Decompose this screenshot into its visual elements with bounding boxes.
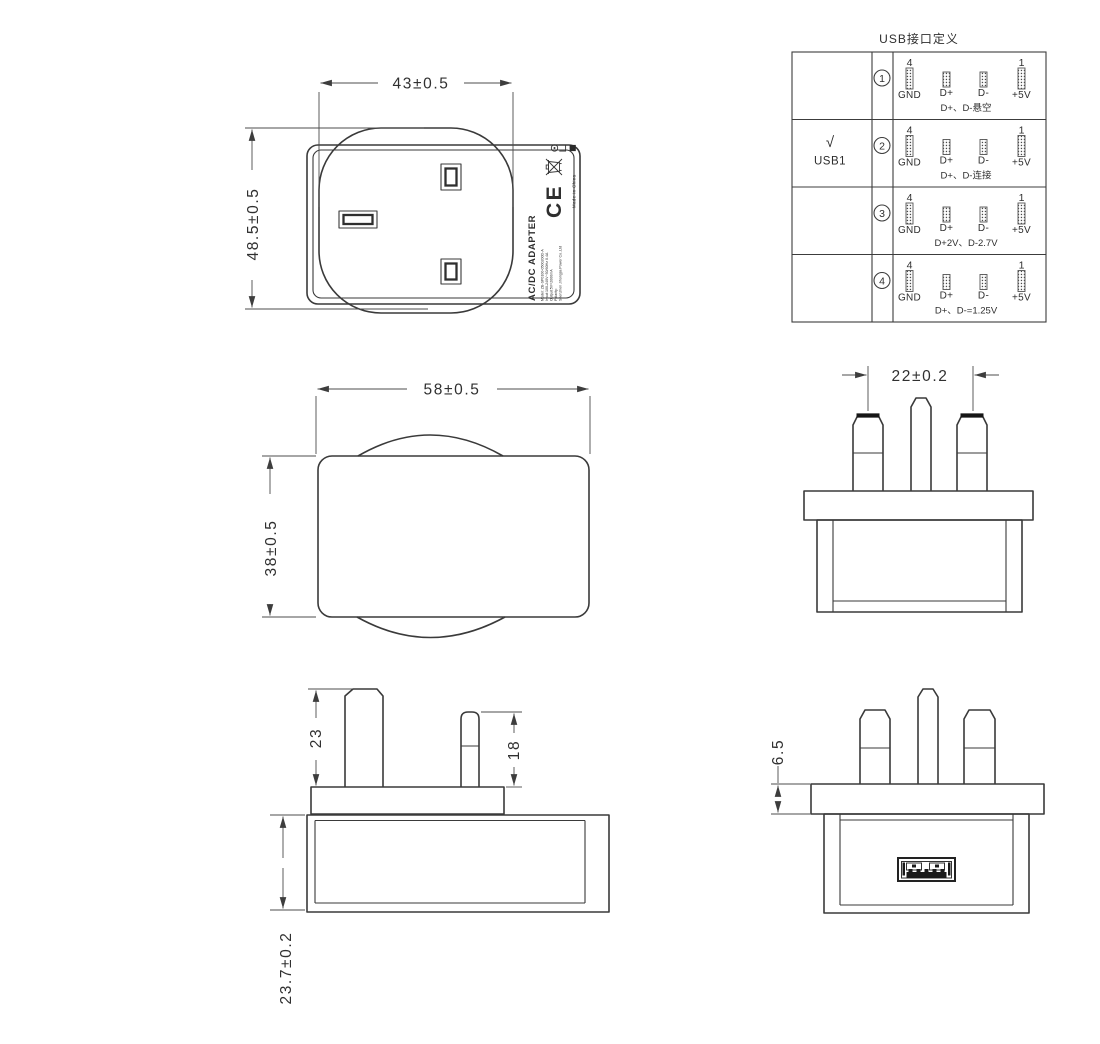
dim-power-pin-text: 18 (506, 740, 523, 760)
body-outline-top-view (318, 456, 589, 617)
view-side: 23 18 23.7±0.2 (270, 689, 609, 1005)
view-usb-front: 6.5 (770, 689, 1044, 913)
dim-top-depth: 38±0.5 (262, 456, 316, 617)
left-pin-usb-view (860, 710, 890, 784)
row4-pin4: 4 (907, 260, 913, 272)
row4-note: D+、D-=1.25V (935, 306, 998, 317)
dome-arc-bottom (357, 617, 505, 638)
body-side (307, 815, 609, 912)
dim-body-thickness: 23.7±0.2 (270, 815, 305, 1005)
label-input-line: Input:100-240V~50/60Hz 0.4A (545, 252, 549, 301)
power-pin-side (461, 712, 479, 787)
product-label: AC/DC ADAPTER Model: ZB-SP0100-0500200D-… (527, 145, 577, 301)
made-in-china-text: Made in China (572, 174, 577, 208)
live-pin-slot (441, 164, 461, 190)
dim-earth-pin-text: 23 (308, 728, 325, 748)
row1-pin1: 1 (1019, 57, 1025, 69)
usb-definition-table: USB接口定义 1 4 1 GND D+ D- +5V D+、D-悬空 √ US… (792, 31, 1046, 322)
dim-front-width-text: 43±0.5 (393, 76, 450, 93)
dim-top-width: 58±0.5 (316, 382, 590, 455)
table-row-1: 1 4 1 GND D+ D- +5V D+、D-悬空 (874, 57, 1031, 114)
center-pin (911, 398, 931, 491)
row2-pin4: 4 (907, 125, 913, 137)
row4-dminus: D- (978, 291, 989, 302)
row3-pin1: 1 (1019, 192, 1025, 204)
row4-number: 4 (879, 275, 885, 287)
dome-arc-top (358, 435, 503, 456)
flange-usb-view (811, 784, 1044, 814)
right-pin-usb-view (964, 710, 995, 784)
usb-tongue (907, 872, 947, 878)
usb-port (898, 858, 955, 881)
row2-number: 2 (879, 140, 885, 152)
dim-top-depth-text: 38±0.5 (263, 520, 280, 577)
earth-pin-side (345, 689, 383, 787)
row3-pin4: 4 (907, 192, 913, 204)
body (817, 520, 1022, 612)
dim-front-width: 43±0.5 (319, 76, 513, 208)
label-company-line: Shenzhen Jihongjia Power Co.,Ltd (559, 246, 563, 301)
row3-number: 3 (879, 208, 885, 220)
row2-5v: +5V (1012, 158, 1031, 169)
label-title: AC/DC ADAPTER (527, 215, 538, 301)
label-model-line: Model: ZB-SP0100-0500200D-A (541, 249, 545, 301)
row1-note: D+、D-悬空 (941, 102, 992, 114)
usb1-checkmark: √ (826, 134, 835, 151)
weee-bin-icon (546, 159, 562, 175)
table-row-3: 3 4 1 GND D+ D- +5V D+2V、D-2.7V (874, 192, 1031, 249)
center-pin-usb-view (918, 689, 938, 784)
table-row-4: 4 4 1 GND D+ D- +5V D+、D-=1.25V (874, 260, 1031, 317)
dim-front-height-text: 48.5±0.5 (245, 187, 262, 260)
view-top: 58±0.5 38±0.5 (262, 382, 590, 638)
table-row-2: √ USB1 2 4 1 GND D+ D- +5V D+、D-连接 (814, 125, 1031, 182)
row3-gnd: GND (898, 225, 921, 236)
neutral-pin-slot (441, 259, 461, 284)
ce-mark: CE (543, 184, 566, 218)
row2-note: D+、D-连接 (941, 170, 992, 182)
technical-drawing-page: AC/DC ADAPTER Model: ZB-SP0100-0500200D-… (0, 0, 1100, 1044)
table-title: USB接口定义 (879, 31, 959, 46)
body-usb-view (824, 814, 1029, 913)
row3-dplus: D+ (940, 223, 954, 234)
row2-dminus: D- (978, 156, 989, 167)
row4-pin1: 1 (1019, 260, 1025, 272)
usb1-label: USB1 (814, 156, 846, 168)
row1-5v: +5V (1012, 90, 1031, 101)
dim-pin-spacing: 22±0.2 (842, 366, 999, 411)
row2-pin1: 1 (1019, 125, 1025, 137)
drawing-canvas: AC/DC ADAPTER Model: ZB-SP0100-0500200D-… (0, 0, 1100, 1044)
dim-body-thickness-text: 23.7±0.2 (278, 931, 295, 1004)
row2-gnd: GND (898, 158, 921, 169)
dim-top-width-text: 58±0.5 (424, 382, 481, 399)
row1-gnd: GND (898, 90, 921, 101)
dim-front-height: 48.5±0.5 (245, 128, 428, 309)
view-front-face: AC/DC ADAPTER Model: ZB-SP0100-0500200D-… (245, 76, 580, 314)
label-output-line: Output:5V=2000mA (550, 269, 554, 301)
dim-flange-thickness: 6.5 (770, 739, 810, 814)
row3-note: D+2V、D-2.7V (934, 238, 998, 249)
circle-cert-dot (554, 147, 556, 149)
square-cert-icon (570, 145, 576, 151)
row4-dplus: D+ (940, 291, 954, 302)
row1-dplus: D+ (940, 88, 954, 99)
earth-pin-slot (339, 211, 377, 228)
dim-flange-thickness-text: 6.5 (770, 739, 787, 765)
dim-pin-spacing-text: 22±0.2 (892, 368, 949, 385)
dim-power-pin-length: 18 (481, 712, 523, 787)
flange (804, 491, 1033, 520)
plug-face-oval (319, 128, 513, 313)
row3-dminus: D- (978, 223, 989, 234)
row1-pin4: 4 (907, 57, 913, 69)
row4-5v: +5V (1012, 293, 1031, 304)
row4-gnd: GND (898, 293, 921, 304)
row1-number: 1 (879, 73, 885, 85)
label-polarity-line: Polarity: (554, 288, 558, 301)
row3-5v: +5V (1012, 225, 1031, 236)
view-pin-front: 22±0.2 (804, 366, 1033, 612)
row1-dminus: D- (978, 88, 989, 99)
row2-dplus: D+ (940, 156, 954, 167)
platform-side (311, 787, 504, 814)
